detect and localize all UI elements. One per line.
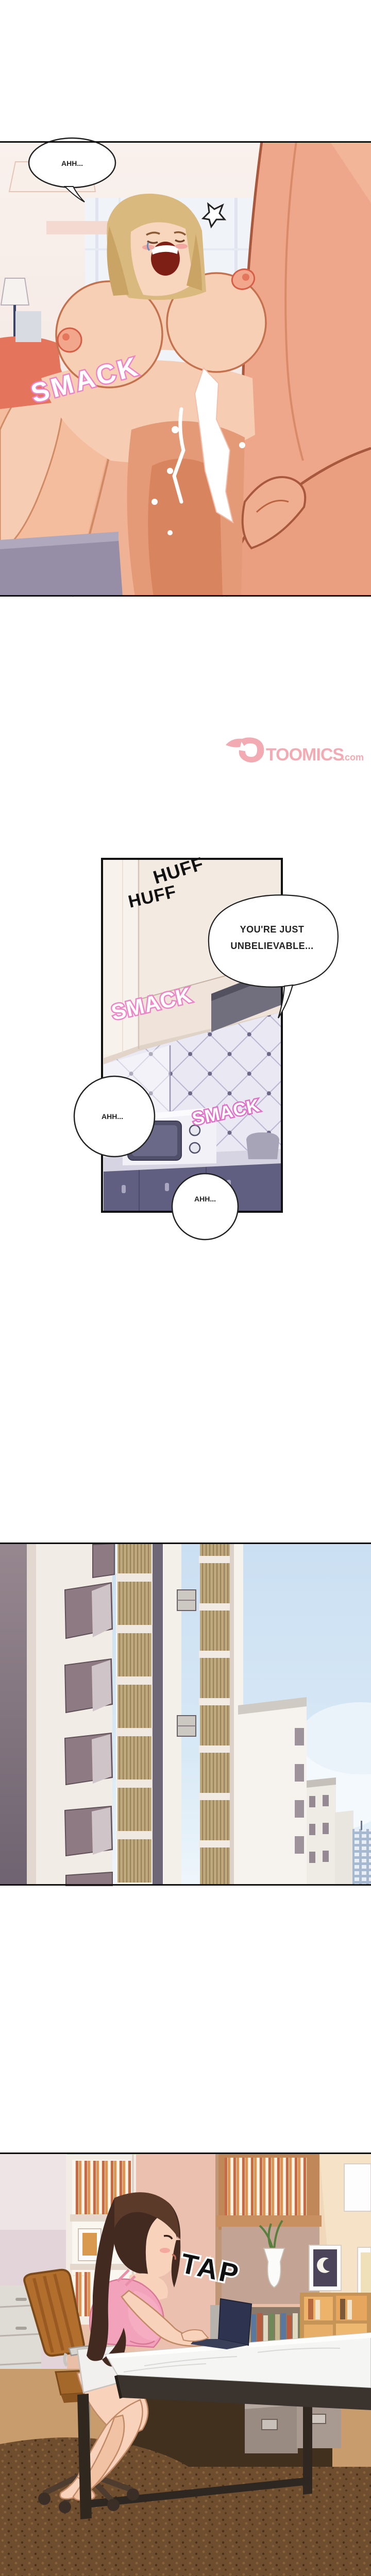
svg-text:YOU'RE JUST: YOU'RE JUST — [240, 924, 305, 935]
svg-text:AHH...: AHH... — [102, 1112, 123, 1121]
svg-text:TOOMICS: TOOMICS — [266, 745, 344, 765]
svg-text:AHH...: AHH... — [194, 1195, 216, 1203]
svg-text:AHH...: AHH... — [61, 159, 83, 167]
svg-text:UNBELIEVABLE...: UNBELIEVABLE... — [230, 941, 313, 951]
svg-text:.com: .com — [342, 752, 364, 762]
